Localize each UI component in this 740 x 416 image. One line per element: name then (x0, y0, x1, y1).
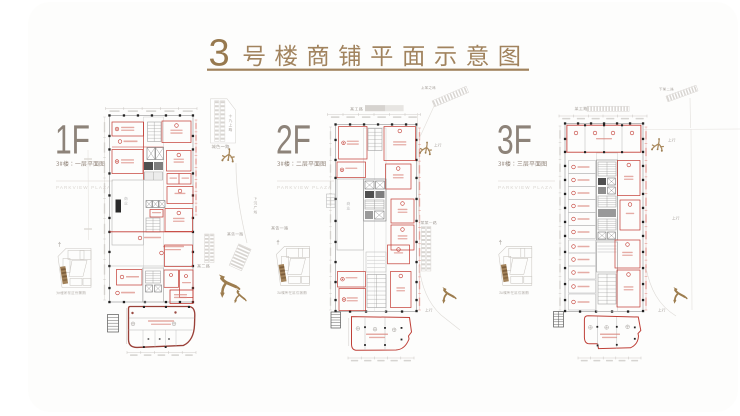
svg-text:PARKVIEW PLAZA: PARKVIEW PLAZA (56, 185, 111, 190)
svg-text:PARKVIEW PLAZA: PARKVIEW PLAZA (277, 185, 332, 190)
svg-text:2F: 2F (276, 117, 311, 163)
svg-text:3F: 3F (497, 117, 532, 163)
svg-text:PARKVIEW PLAZA: PARKVIEW PLAZA (498, 185, 553, 190)
svg-text:1F: 1F (55, 117, 90, 163)
